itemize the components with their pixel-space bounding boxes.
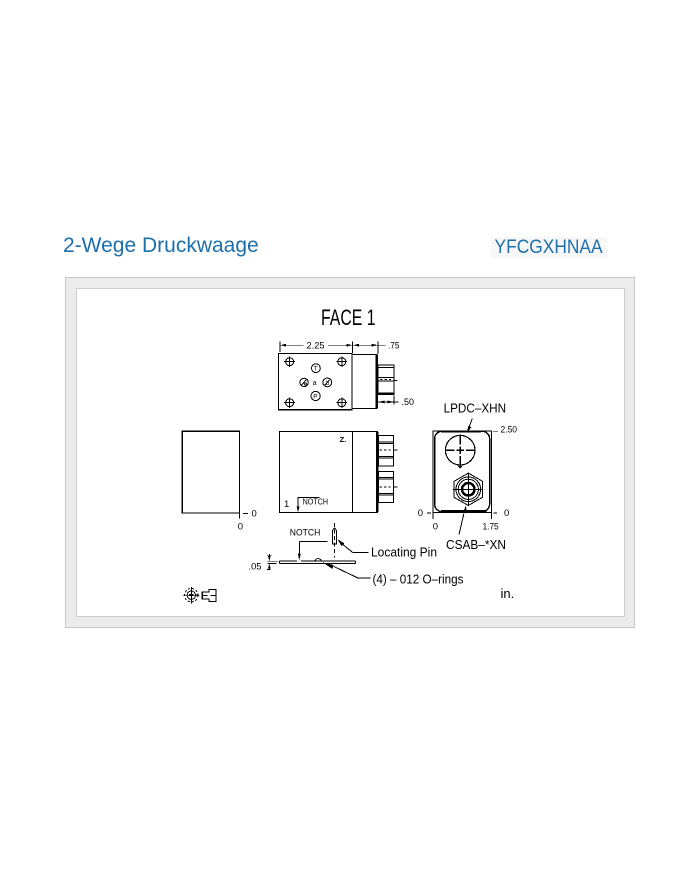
svg-text:a: a (313, 380, 317, 387)
svg-text:1.75: 1.75 (483, 522, 499, 533)
svg-text:T: T (314, 366, 318, 373)
svg-text:.75: .75 (388, 340, 400, 350)
svg-text:P: P (313, 394, 317, 401)
svg-text:0: 0 (504, 508, 509, 519)
svg-text:0: 0 (433, 522, 438, 533)
svg-text:.05: .05 (249, 561, 262, 571)
svg-text:in.: in. (501, 586, 515, 601)
svg-text:LPDC–XHN: LPDC–XHN (444, 401, 507, 416)
svg-text:FACE 1: FACE 1 (321, 305, 376, 330)
svg-text:CSAB–*XN: CSAB–*XN (446, 538, 506, 552)
svg-text:2.50: 2.50 (501, 425, 518, 436)
svg-text:NOTCH: NOTCH (290, 528, 321, 538)
svg-text:0: 0 (252, 509, 257, 520)
svg-text:Locating Pin: Locating Pin (371, 544, 437, 559)
svg-text:NOTCH: NOTCH (303, 497, 329, 507)
svg-text:2.25: 2.25 (307, 340, 325, 350)
svg-text:0: 0 (418, 508, 423, 519)
svg-text:1: 1 (284, 499, 289, 510)
svg-text:(4) – 012 O–rings: (4) – 012 O–rings (373, 571, 464, 586)
svg-text:.50: .50 (402, 397, 415, 407)
svg-text:0: 0 (238, 522, 243, 533)
svg-text:Z.: Z. (340, 435, 347, 444)
